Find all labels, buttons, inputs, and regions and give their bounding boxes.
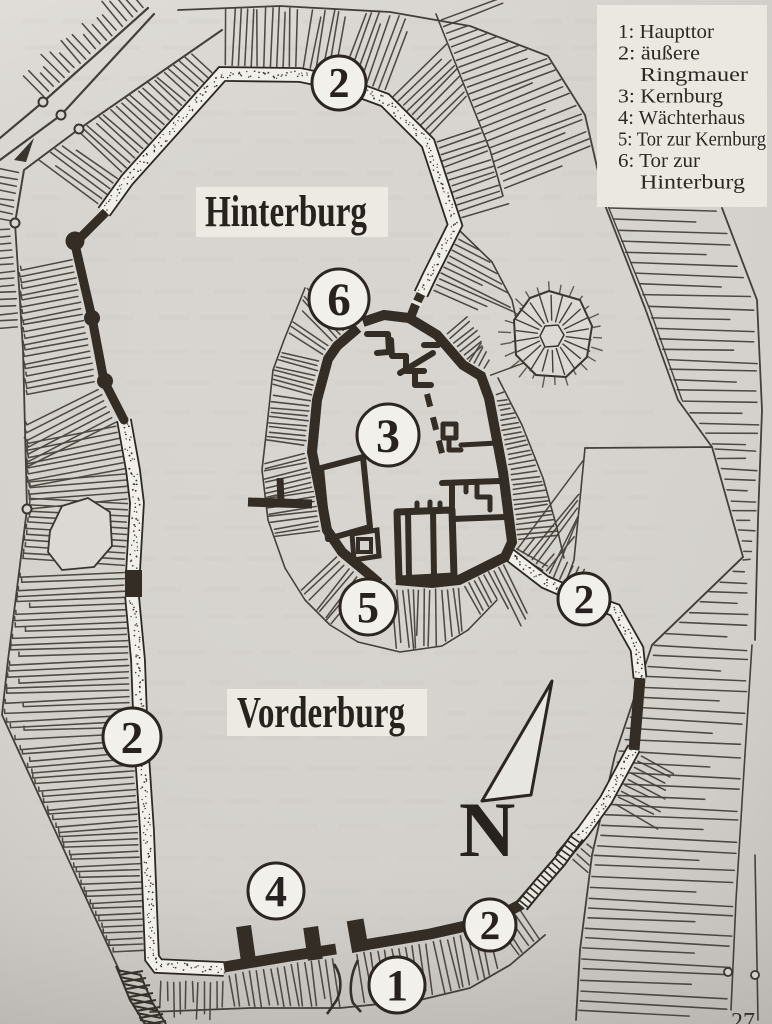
svg-text:6: 6 xyxy=(327,274,351,326)
svg-text:Hinterburg: Hinterburg xyxy=(205,187,367,236)
svg-text:Hinterburg: Hinterburg xyxy=(640,173,745,194)
svg-text:N: N xyxy=(459,786,515,873)
svg-text:2: 2 xyxy=(480,902,501,948)
svg-text:Vorderburg: Vorderburg xyxy=(237,688,405,737)
svg-text:Ringmauer: Ringmauer xyxy=(640,65,749,86)
svg-text:1: 1 xyxy=(386,961,408,1010)
svg-text:3: Kernburg: 3: Kernburg xyxy=(618,87,723,108)
svg-text:4: Wächterhaus: 4: Wächterhaus xyxy=(618,108,745,129)
svg-text:1: Haupttor: 1: Haupttor xyxy=(618,22,715,43)
svg-text:27: 27 xyxy=(731,1009,755,1024)
svg-text:4: 4 xyxy=(265,867,287,916)
svg-text:2: äußere: 2: äußere xyxy=(618,44,700,65)
svg-text:2: 2 xyxy=(121,713,144,763)
svg-text:3: 3 xyxy=(376,410,400,463)
svg-text:2: 2 xyxy=(574,576,595,622)
svg-text:5: 5 xyxy=(357,583,379,632)
svg-text:2: 2 xyxy=(329,61,350,107)
svg-text:6: Tor zur: 6: Tor zur xyxy=(618,151,701,172)
svg-text:5: Tor zur Kernburg: 5: Tor zur Kernburg xyxy=(618,130,766,151)
